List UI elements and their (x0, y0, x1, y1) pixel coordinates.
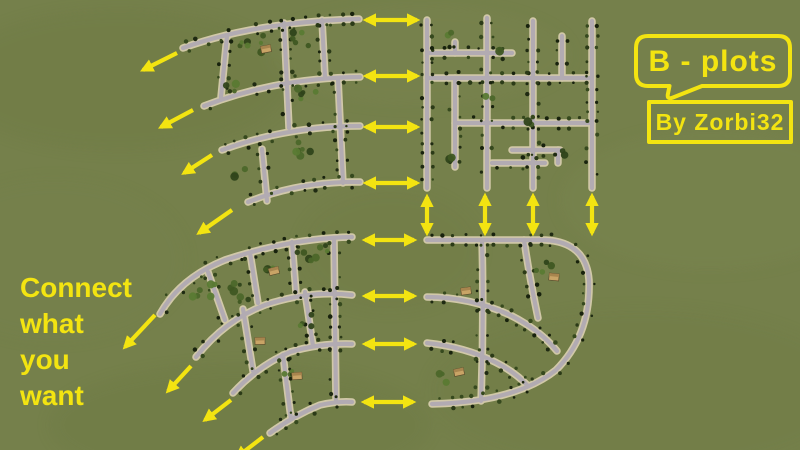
building (292, 372, 302, 380)
title-text: B - plots (649, 45, 778, 78)
note-line-1: Connect (20, 272, 132, 303)
note-line-2: what (19, 308, 84, 339)
city-map-scene: B - plots By Zorbi32 Connect what you wa… (0, 0, 800, 450)
building (549, 273, 560, 281)
game-screenshot: B - plots By Zorbi32 Connect what you wa… (0, 0, 800, 450)
note-line-3: you (20, 344, 70, 375)
building (461, 287, 472, 295)
author-text: By Zorbi32 (656, 109, 785, 135)
building (260, 45, 271, 54)
note-line-4: want (19, 380, 84, 411)
building (255, 337, 265, 344)
